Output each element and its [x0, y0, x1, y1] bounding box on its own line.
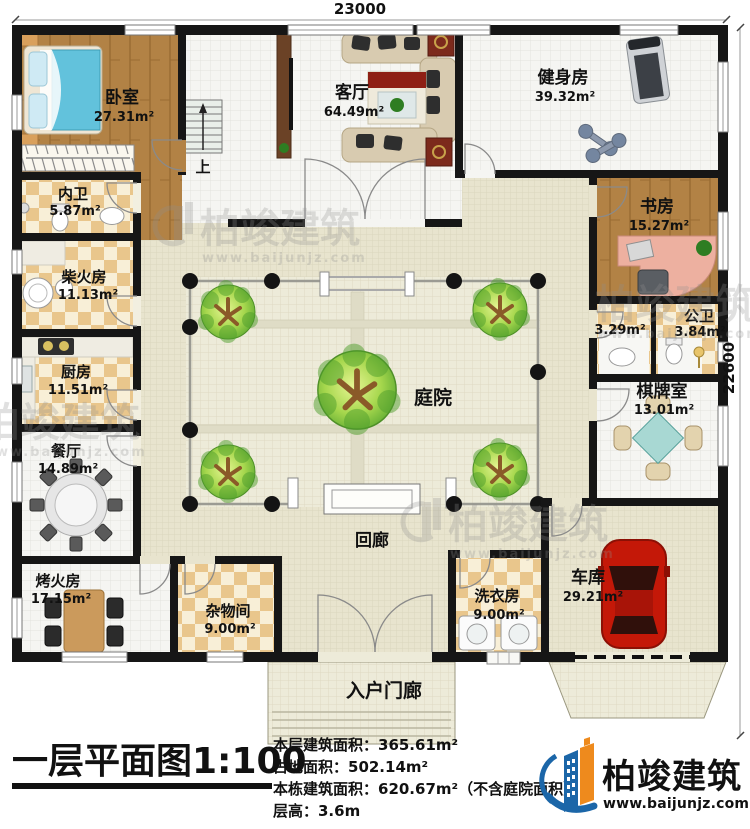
study-area: 15.27m²: [629, 219, 689, 234]
entry-porch: [268, 662, 455, 744]
svg-text:www.baijunjz.com: www.baijunjz.com: [597, 327, 750, 342]
storage-area: 9.00m²: [204, 622, 255, 637]
tv-wall: [277, 30, 291, 158]
kitchen-label: 厨房: [61, 363, 91, 381]
stat-land-area: 占地面积：502.14m²: [273, 758, 428, 776]
heating-area: 17.15m²: [31, 592, 91, 607]
floor-plan-page: 卧室 27.31m² 客厅 64.49m² 健身房 39.32m² 书房 15.…: [0, 0, 750, 829]
bedroom-label: 卧室: [105, 87, 139, 108]
floor-plan-drawing: 卧室 27.31m² 客厅 64.49m² 健身房 39.32m² 书房 15.…: [0, 0, 750, 829]
watermark: 柏竣建筑 www.baijunjz.com: [595, 282, 750, 342]
kitchen-area: 11.51m²: [48, 383, 108, 398]
living-area: 64.49m²: [324, 105, 384, 120]
stat-floor-area: 本层建筑面积：365.61m²: [273, 736, 458, 754]
firewood-area: 11.13m²: [58, 288, 118, 303]
garage-area: 29.21m²: [563, 590, 623, 605]
laundry-area: 9.00m²: [473, 608, 524, 623]
gym-area: 39.32m²: [535, 90, 595, 105]
gym-label: 健身房: [538, 67, 589, 88]
laundry-label: 洗衣房: [474, 587, 519, 605]
wardrobe: [22, 145, 134, 171]
svg-text:柏竣建筑: 柏竣建筑: [595, 282, 750, 328]
brand-logo-icon: [542, 737, 594, 812]
dining-area: 14.89m²: [38, 462, 98, 477]
svg-text:柏竣建筑: 柏竣建筑: [448, 502, 608, 548]
chess-area: 13.01m²: [634, 403, 694, 418]
svg-text:www.baijunjz.com: www.baijunjz.com: [0, 445, 147, 460]
title-underline: [12, 783, 272, 789]
storage-label: 杂物间: [205, 602, 250, 620]
stairs-up-label: 上: [195, 158, 210, 176]
title-block: 一层平面图1:100 本层建筑面积：365.61m² 占地面积：502.14m²…: [12, 736, 578, 820]
courtyard-label: 庭院: [414, 386, 452, 409]
stairs: [184, 100, 222, 153]
living-label: 客厅: [334, 82, 369, 103]
stat-building-area: 本栋建筑面积：620.67m²（不含庭院面积）: [273, 780, 578, 798]
watermark: 柏竣建筑 www.baijunjz.com: [0, 400, 147, 460]
tv-icon: [289, 58, 293, 130]
study-label: 书房: [640, 196, 674, 217]
garage-label: 车库: [571, 567, 605, 588]
ensuite-area: 5.87m²: [49, 204, 100, 219]
chess-label: 棋牌室: [637, 381, 688, 402]
brand-site: www.baijunjz.com: [603, 796, 749, 812]
svg-text:www.baijunjz.com: www.baijunjz.com: [202, 251, 367, 266]
dimension-top: 23000: [12, 0, 730, 23]
heating-label: 烤火房: [35, 572, 80, 590]
svg-text:柏竣建筑: 柏竣建筑: [0, 400, 140, 446]
brand-logo: 柏竣建筑 www.baijunjz.com: [542, 737, 749, 812]
porch-label: 入户门廊: [346, 679, 422, 702]
dimension-right-value: 22600: [720, 342, 738, 394]
firewood-label: 柴火房: [60, 268, 106, 286]
plan-title: 一层平面图1:100: [12, 741, 307, 782]
brand-name: 柏竣建筑: [602, 757, 742, 797]
garage-driveway: [549, 662, 726, 718]
ensuite-label: 内卫: [58, 185, 88, 203]
bedroom-area: 27.31m²: [94, 110, 154, 125]
stat-floor-height: 层高：3.6m: [273, 802, 360, 820]
dimension-top-value: 23000: [334, 0, 386, 18]
laundry-step: [487, 652, 520, 664]
svg-text:柏竣建筑: 柏竣建筑: [200, 206, 360, 252]
svg-text:www.baijunjz.com: www.baijunjz.com: [450, 547, 615, 562]
corridor-label: 回廊: [355, 530, 389, 551]
